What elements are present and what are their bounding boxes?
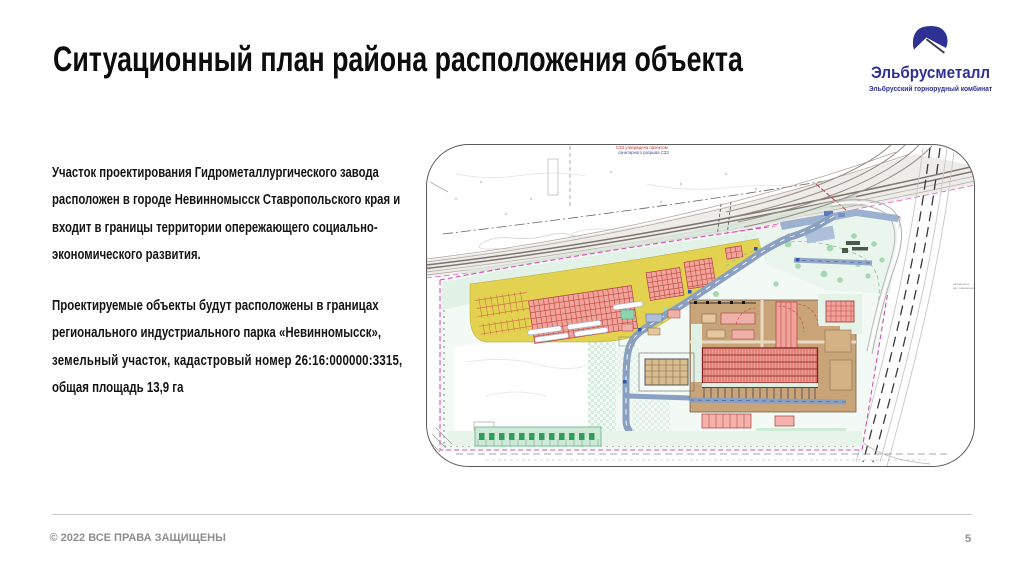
svg-text:на г. Невинномысск: на г. Невинномысск [953, 286, 975, 290]
svg-text:санитарного разрыва СЗЗ: санитарного разрыва СЗЗ [618, 150, 669, 155]
